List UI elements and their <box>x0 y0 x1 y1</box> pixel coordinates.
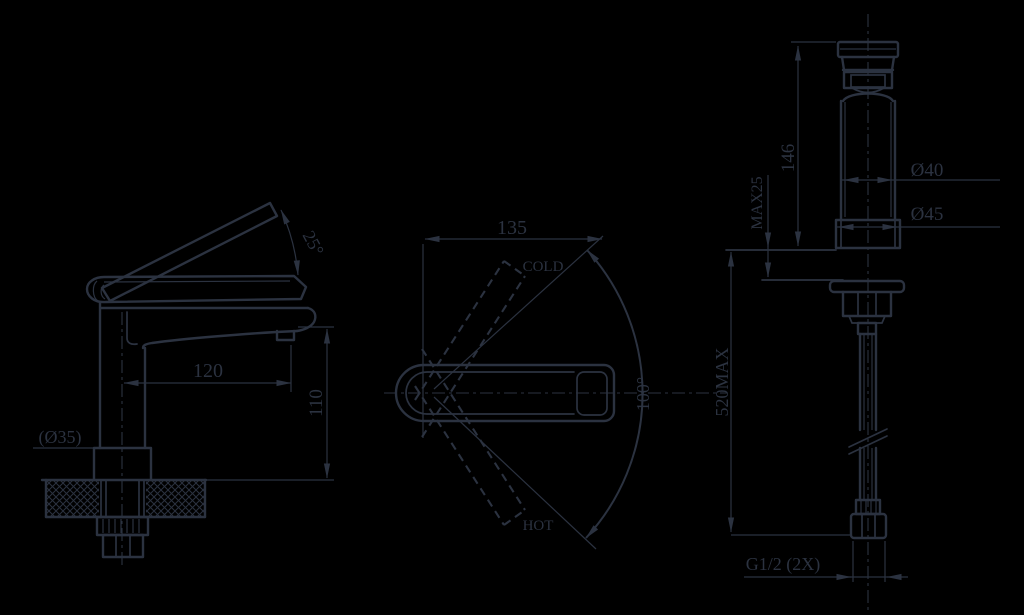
dimension-thread-size: G1/2 (2X) <box>746 554 821 575</box>
shank-hex-facets <box>116 536 130 556</box>
dimension-hole-diameter: (Ø35) <box>39 427 82 448</box>
dim-ext-g12 <box>853 541 885 582</box>
hose-adapter <box>858 323 876 334</box>
handle-pivot-arc <box>93 281 98 301</box>
shank-hex <box>103 535 143 557</box>
handle-lifted-outline <box>102 203 277 301</box>
side-view: 25° (Ø35) 120 110 <box>33 203 334 568</box>
handle-top-edge <box>104 281 290 282</box>
technical-drawing: 25° (Ø35) 120 110 <box>0 0 1024 615</box>
dimension-spout-reach: 120 <box>193 360 223 382</box>
cold-label: COLD <box>523 259 564 275</box>
dimension-hose-length: 520MAX <box>712 347 732 416</box>
dimension-swivel-angle: 100° <box>633 377 653 411</box>
lock-nut-ribs <box>103 519 139 533</box>
mounting-washer <box>830 281 904 292</box>
deck-hatch-right <box>146 481 204 516</box>
faucet-dimension-drawing: 25° (Ø35) 120 110 <box>0 0 1024 615</box>
top-view: 135 100° COLD HOT <box>384 217 727 549</box>
dimension-deck-thickness: MAX25 <box>749 176 766 229</box>
mounting-nut-facets <box>858 292 876 316</box>
spout-inner-edge <box>127 312 137 344</box>
dimension-body-height: 146 <box>778 144 799 173</box>
angle-arc-25 <box>281 210 298 275</box>
hot-label: HOT <box>523 518 554 534</box>
spout-underside <box>143 331 297 348</box>
front-view: Ø40 Ø45 MAX25 146 520MAX <box>712 14 1000 612</box>
dimension-body-width: 135 <box>497 217 527 239</box>
deck-hatch-left <box>47 481 99 516</box>
dimension-spout-height: 110 <box>306 389 327 417</box>
dimension-handle-angle: 25° <box>299 227 328 259</box>
dimension-base-diameter: Ø45 <box>911 204 944 225</box>
dimension-body-diameter: Ø40 <box>911 160 944 181</box>
mounting-nut <box>843 292 891 316</box>
